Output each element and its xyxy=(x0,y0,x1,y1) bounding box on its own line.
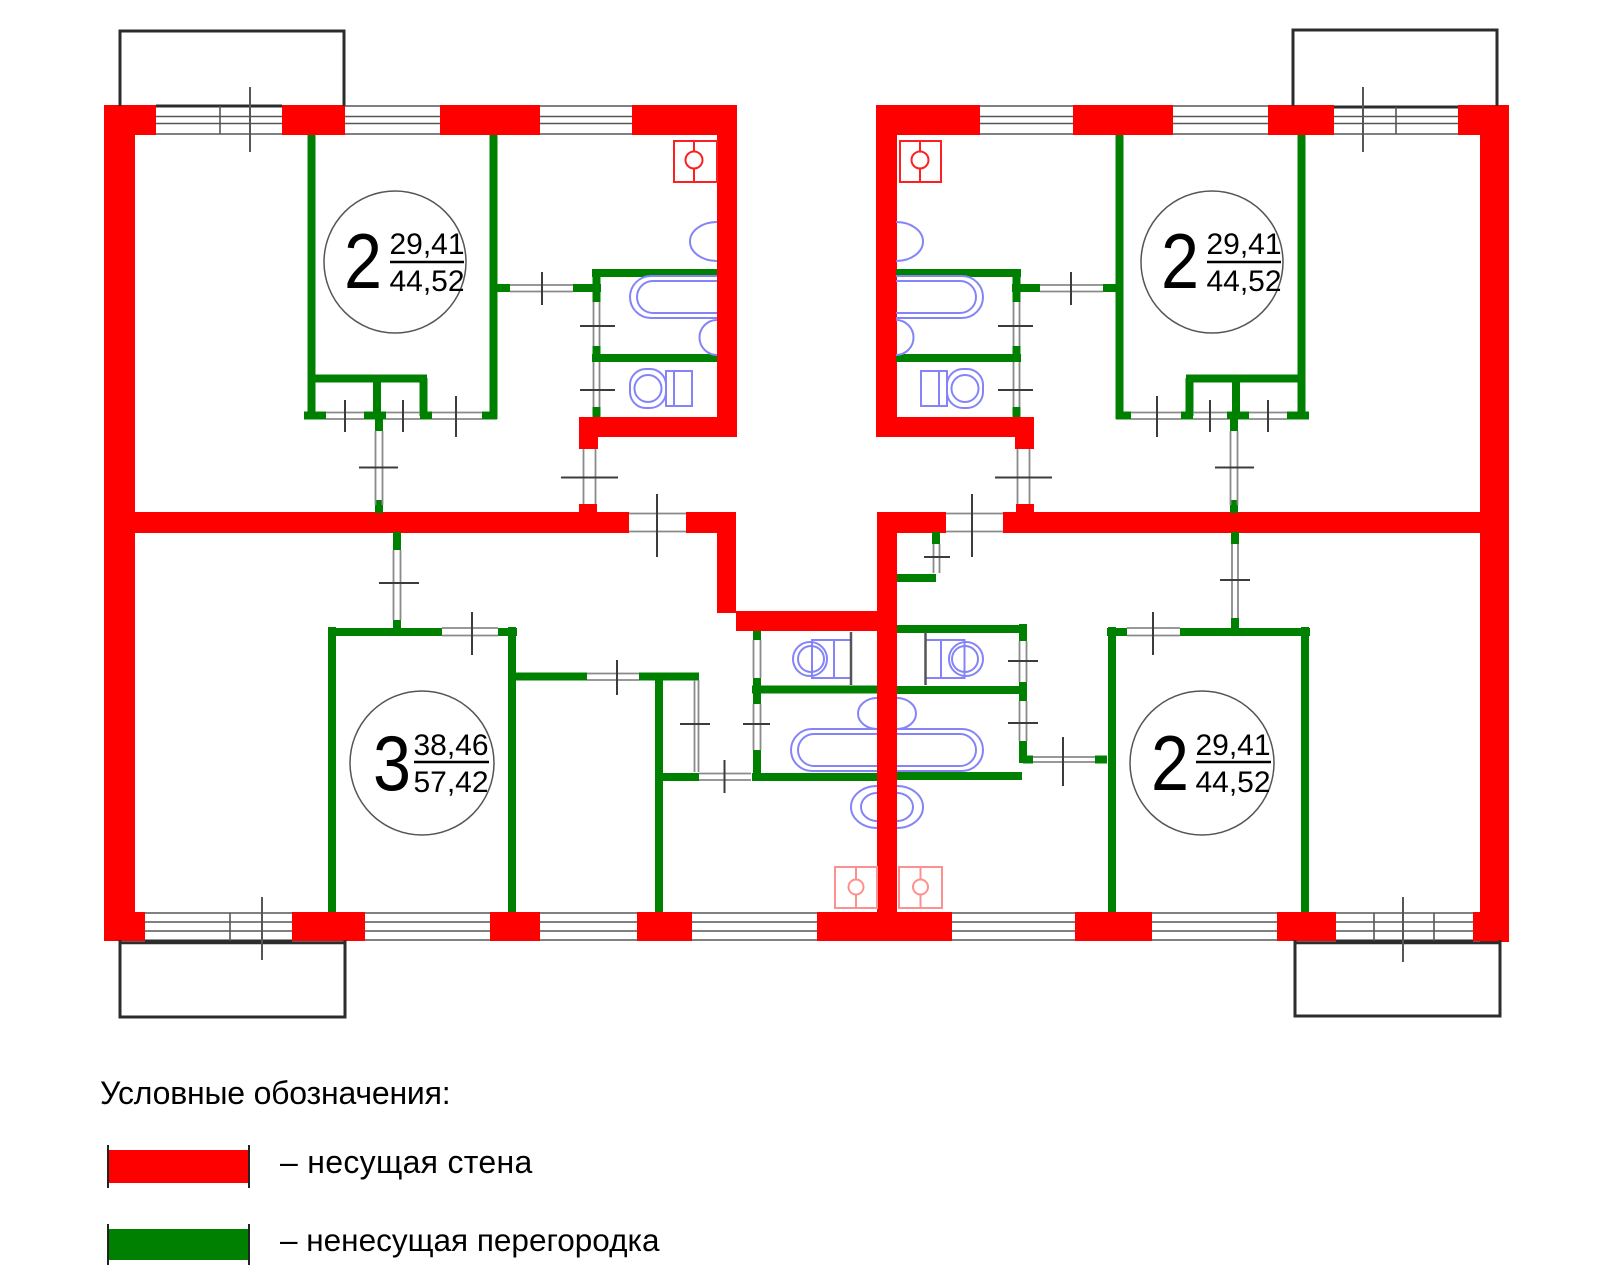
svg-text:2: 2 xyxy=(1151,719,1189,807)
svg-text:29,41: 29,41 xyxy=(1195,729,1270,762)
svg-text:2: 2 xyxy=(1161,217,1199,305)
svg-text:29,41: 29,41 xyxy=(1206,228,1281,261)
svg-text:3: 3 xyxy=(373,719,411,807)
svg-text:– несущая стена: – несущая стена xyxy=(280,1144,533,1180)
svg-text:44,52: 44,52 xyxy=(1195,766,1270,799)
svg-text:57,42: 57,42 xyxy=(413,766,488,799)
svg-text:44,52: 44,52 xyxy=(389,265,464,298)
svg-text:2: 2 xyxy=(344,217,382,305)
svg-text:38,46: 38,46 xyxy=(413,729,488,762)
svg-text:– ненесущая перегородка: – ненесущая перегородка xyxy=(280,1222,660,1258)
svg-text:29,41: 29,41 xyxy=(389,228,464,261)
svg-text:44,52: 44,52 xyxy=(1206,265,1281,298)
svg-text:Условные обозначения:: Условные обозначения: xyxy=(100,1075,450,1111)
